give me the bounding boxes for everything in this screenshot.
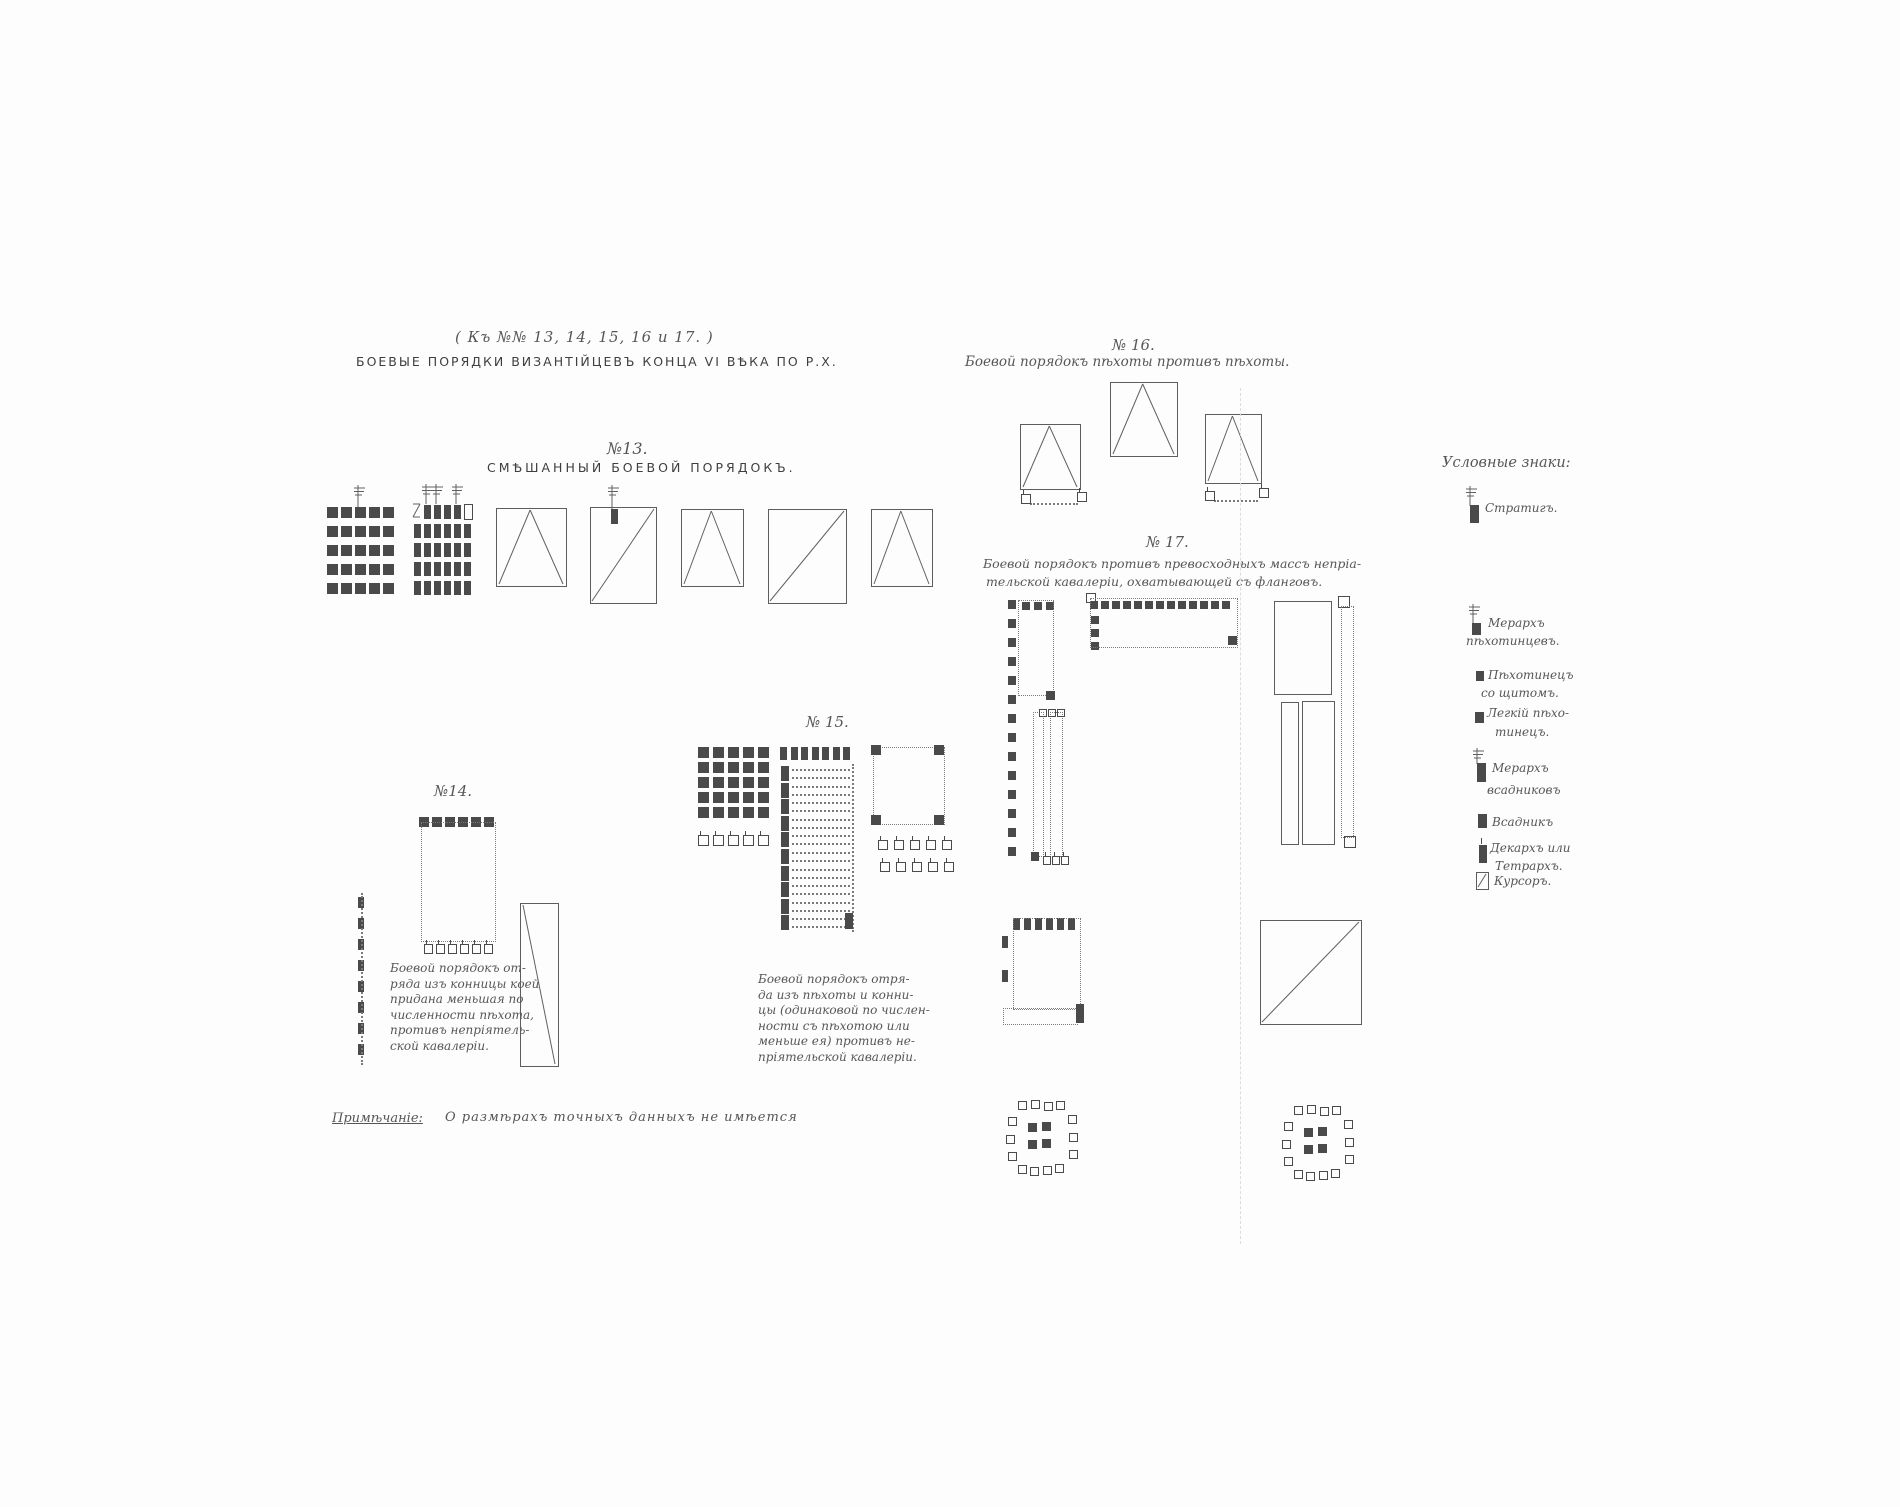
ring-square	[1068, 1115, 1077, 1124]
f15-ladder-bar	[781, 816, 789, 831]
f17-left-flank-square	[1008, 847, 1016, 856]
unit-square-hollow	[896, 862, 906, 872]
standard-flag-icon	[452, 484, 466, 504]
unit-square-hollow	[878, 840, 888, 850]
f13-cavalry-bar	[444, 581, 451, 595]
unit-square	[1046, 691, 1055, 700]
ring-square	[1344, 1120, 1353, 1129]
f15-infantry-square	[713, 777, 724, 788]
f15-ladder-bar	[781, 866, 789, 881]
ring-square	[1018, 1165, 1027, 1174]
f17-left-column-rect	[1050, 712, 1063, 857]
f13-infantry-square	[369, 507, 380, 518]
standard-flag-icon	[432, 484, 446, 504]
diagram-layer	[0, 0, 1900, 1507]
f15-ladder-bar	[833, 747, 840, 760]
f13-cavalry-bar	[464, 581, 471, 595]
unit-square-hollow	[472, 944, 481, 954]
f15-infantry-square	[698, 777, 709, 788]
f14-dotted-rect	[421, 822, 496, 942]
f13-division-rect	[681, 509, 744, 587]
f15-ladder-bar	[843, 747, 850, 760]
f15-ladder-bar	[801, 747, 808, 760]
f15-infantry-square	[743, 807, 754, 818]
f13-infantry-square	[355, 583, 366, 594]
f13-infantry-square	[369, 564, 380, 575]
f13-cavalry-bar	[454, 505, 461, 519]
ring-square	[1307, 1105, 1316, 1114]
f13-infantry-square	[369, 545, 380, 556]
unit-square-hollow	[928, 862, 938, 872]
f13-infantry-square	[327, 526, 338, 537]
f13-cavalry-bar	[454, 543, 461, 557]
f15-infantry-square	[758, 777, 769, 788]
legend-koursor-icon	[1476, 872, 1489, 890]
unit-square-hollow	[713, 835, 724, 846]
f15-dotted-rect	[873, 747, 945, 825]
standard-flag-icon	[608, 485, 622, 509]
unit-square-hollow	[912, 862, 922, 872]
f17-right-division-rect	[1274, 601, 1332, 695]
f15-infantry-square	[728, 792, 739, 803]
unit-square-hollow	[1259, 488, 1269, 498]
f15-infantry-square	[713, 807, 724, 818]
f13-cavalry-bar	[434, 562, 441, 576]
dotted-line	[792, 835, 850, 837]
f17-left-flank-square	[1008, 695, 1016, 704]
f13-cavalry-bar	[414, 562, 421, 576]
f17-left-dotted-rect	[1018, 600, 1054, 696]
ring-square	[1069, 1150, 1078, 1159]
f16-infantry-block	[1205, 414, 1262, 484]
f17-left-flank-square	[1008, 771, 1016, 780]
unit-square-hollow	[743, 835, 754, 846]
unit-square-hollow	[448, 944, 457, 954]
unit-square-hollow	[698, 835, 709, 846]
f15-ladder-bar	[781, 915, 789, 930]
ring-square	[1018, 1101, 1027, 1110]
f13-infantry-square	[327, 583, 338, 594]
ring-square	[1345, 1155, 1354, 1164]
dotted-line	[792, 885, 850, 887]
f13-cavalry-bar	[434, 524, 441, 538]
f17-left-flank-square	[1008, 600, 1016, 609]
f17-right-column-rect	[1302, 701, 1335, 845]
legend-merarch-cavalry-bar	[1477, 763, 1486, 782]
koursor-slash-icon	[412, 503, 422, 519]
ring-square	[1306, 1172, 1315, 1181]
dotted-line	[792, 810, 850, 812]
unit-square	[1076, 1004, 1084, 1023]
f13-infantry-square	[383, 583, 394, 594]
f15-infantry-square	[758, 792, 769, 803]
unit-square-hollow	[1052, 856, 1060, 865]
ring-square	[1284, 1122, 1293, 1131]
f13-infantry-square	[383, 564, 394, 575]
legend-strategos-flag-icon	[1466, 486, 1480, 506]
f15-infantry-square	[713, 792, 724, 803]
dotted-line-vertical	[361, 893, 363, 1065]
dotted-line	[792, 918, 850, 920]
unit-square-hollow	[460, 944, 469, 954]
f13-infantry-square	[369, 526, 380, 537]
unit-square-hollow	[1043, 856, 1051, 865]
scanned-plate: ( Къ №№ 13, 14, 15, 16 и 17. ) БОЕВЫЕ ПО…	[0, 0, 1900, 1507]
f17-right-column-rect	[1281, 702, 1299, 845]
ring-center-square	[1304, 1128, 1313, 1137]
ring-center-square	[1042, 1139, 1051, 1148]
f15-ladder-bar	[781, 882, 789, 897]
legend-merarch-infantry-square	[1472, 623, 1481, 635]
legend-horseman-bar	[1478, 814, 1487, 828]
dotted-line	[792, 926, 850, 928]
f15-corner-square	[934, 815, 944, 825]
standard-flag-icon	[354, 485, 368, 509]
unit-square-hollow	[436, 944, 445, 954]
dotted-line	[792, 843, 850, 845]
f13-infantry-square	[327, 507, 338, 518]
f17-reserve-dotted-rect	[1013, 918, 1081, 1010]
f13-cavalry-bar	[464, 543, 471, 557]
f17-left-flank-square	[1008, 733, 1016, 742]
dotted-line	[1214, 500, 1258, 502]
dotted-line	[792, 893, 850, 895]
f15-ladder-bar	[822, 747, 829, 760]
f17-center-dotted-rect	[1090, 598, 1238, 648]
unit-square-hollow	[1021, 494, 1031, 504]
f15-ladder-bar	[781, 766, 789, 781]
f17-left-flank-square	[1008, 657, 1016, 666]
f17-left-flank-square	[1008, 676, 1016, 685]
f13-cavalry-bar	[444, 524, 451, 538]
f13-cavalry-bar	[454, 524, 461, 538]
legend-merarch-cavalry-flag-icon	[1473, 748, 1487, 764]
f13-infantry-square	[383, 507, 394, 518]
f13-cavalry-bar	[424, 505, 431, 519]
f17-reserve-band	[1003, 1008, 1078, 1025]
f15-ladder-bar	[781, 849, 789, 864]
f13-infantry-square	[383, 526, 394, 537]
f15-infantry-square	[743, 792, 754, 803]
unit-square	[1031, 852, 1039, 861]
f13-cavalry-bar	[454, 562, 461, 576]
unit-square	[1002, 970, 1008, 982]
ring-center-square	[1028, 1140, 1037, 1149]
ring-square	[1006, 1135, 1015, 1144]
f15-infantry-square	[743, 762, 754, 773]
f13-cavalry-bar	[434, 543, 441, 557]
dotted-line	[792, 802, 850, 804]
dotted-line	[1030, 503, 1078, 505]
f13-cavalry-bar	[444, 505, 451, 519]
ring-square	[1319, 1171, 1328, 1180]
dotted-line	[792, 827, 850, 829]
dotted-line	[792, 910, 850, 912]
ring-square	[1044, 1102, 1053, 1111]
unit-square-hollow	[1057, 709, 1065, 717]
ring-square	[1345, 1138, 1354, 1147]
dotted-line	[792, 777, 850, 779]
ring-square	[1294, 1170, 1303, 1179]
f13-cavalry-bar	[444, 543, 451, 557]
f13-cavalry-bar	[414, 581, 421, 595]
f15-ladder-bar	[780, 747, 787, 760]
ring-center-square	[1318, 1127, 1327, 1136]
legend-decarch-bar	[1479, 845, 1487, 863]
f17-left-flank-square	[1008, 809, 1016, 818]
f13-infantry-square	[355, 545, 366, 556]
f15-infantry-square	[728, 762, 739, 773]
f13-cavalry-bar	[424, 543, 431, 557]
unit-square	[1228, 636, 1237, 645]
f17-left-flank-square	[1008, 714, 1016, 723]
f15-infantry-square	[758, 762, 769, 773]
ring-center-square	[1042, 1122, 1051, 1131]
f15-ladder-bar	[791, 747, 798, 760]
ring-square	[1008, 1117, 1017, 1126]
legend-light-infantry-square	[1475, 712, 1484, 723]
f15-ladder-bar	[781, 783, 789, 798]
f15-corner-square	[934, 745, 944, 755]
f15-corner-square	[871, 815, 881, 825]
page-crease-line	[1240, 388, 1241, 1244]
ring-square	[1043, 1166, 1052, 1175]
unit-square-hollow	[728, 835, 739, 846]
dotted-line	[792, 819, 850, 821]
ring-square	[1294, 1106, 1303, 1115]
f13-infantry-square	[355, 526, 366, 537]
unit-square-hollow	[880, 862, 890, 872]
dotted-line	[792, 769, 850, 771]
f16-infantry-block	[1020, 424, 1081, 490]
unit-square-hollow	[484, 944, 493, 954]
f17-left-flank-square	[1008, 619, 1016, 628]
dotted-line	[792, 794, 850, 796]
ring-square	[1284, 1157, 1293, 1166]
f15-ladder-bar	[781, 899, 789, 914]
legend-merarch-infantry-flag-icon	[1469, 604, 1483, 624]
f15-infantry-square	[743, 777, 754, 788]
f17-left-column-rect	[1033, 712, 1044, 857]
f17-square-division	[1260, 920, 1362, 1025]
f13-cavalry-bar	[434, 581, 441, 595]
unit-square-hollow	[894, 840, 904, 850]
f15-ladder-bar	[845, 913, 853, 929]
f17-left-flank-square	[1008, 828, 1016, 837]
f17-left-flank-square	[1008, 638, 1016, 647]
unit-square-hollow	[1039, 709, 1047, 717]
f13-cavalry-bar	[424, 562, 431, 576]
f13-infantry-square	[383, 545, 394, 556]
ring-square	[1282, 1140, 1291, 1149]
f15-infantry-square	[698, 792, 709, 803]
f17-right-dotted-strip	[1341, 606, 1354, 838]
ring-square	[1031, 1100, 1040, 1109]
f13-cavalry-bar	[424, 524, 431, 538]
ring-square	[1332, 1106, 1341, 1115]
f13-cavalry-bar	[464, 562, 471, 576]
legend-strategos-bar	[1470, 505, 1479, 523]
koursor-rect-icon	[464, 504, 473, 520]
f17-left-flank-square	[1008, 790, 1016, 799]
f13-infantry-square	[355, 507, 366, 518]
f15-infantry-square	[728, 777, 739, 788]
f13-infantry-square	[341, 564, 352, 575]
f13-infantry-square	[327, 564, 338, 575]
f13-cavalry-bar	[454, 581, 461, 595]
unit-square-hollow	[910, 840, 920, 850]
f17-left-flank-square	[1008, 752, 1016, 761]
f13-division-rect	[590, 507, 657, 604]
f13-infantry-square	[327, 545, 338, 556]
unit-square-hollow	[758, 835, 769, 846]
unit-square-hollow	[424, 944, 433, 954]
unit-square-hollow	[1205, 491, 1215, 501]
dotted-line	[792, 902, 850, 904]
f15-infantry-square	[698, 747, 709, 758]
f13-infantry-square	[341, 545, 352, 556]
unit-square	[1481, 838, 1482, 844]
f13-division-rect	[871, 509, 933, 587]
f15-infantry-square	[698, 762, 709, 773]
dotted-line	[792, 852, 850, 854]
unit-square-hollow	[942, 840, 952, 850]
f15-infantry-square	[728, 747, 739, 758]
f15-infantry-square	[743, 747, 754, 758]
f15-infantry-square	[713, 747, 724, 758]
unit-square-hollow	[1061, 856, 1069, 865]
f16-infantry-block	[1110, 382, 1178, 457]
ring-square	[1320, 1107, 1329, 1116]
f15-infantry-square	[728, 807, 739, 818]
ring-square	[1030, 1167, 1039, 1176]
f13-infantry-square	[341, 583, 352, 594]
unit-square-hollow	[1344, 836, 1356, 848]
dotted-line	[792, 786, 850, 788]
f13-infantry-square	[341, 507, 352, 518]
f15-corner-square	[871, 745, 881, 755]
f15-ladder-bar	[781, 799, 789, 814]
unit-square-hollow	[926, 840, 936, 850]
f13-division-rect	[496, 508, 567, 587]
unit-square-hollow	[1077, 492, 1087, 502]
f13-infantry-square	[341, 526, 352, 537]
ring-square	[1055, 1164, 1064, 1173]
f15-infantry-square	[758, 747, 769, 758]
f13-cavalry-bar	[414, 524, 421, 538]
unit-square-hollow	[1048, 709, 1056, 717]
f13-cavalry-bar	[464, 524, 471, 538]
dotted-line	[792, 869, 850, 871]
f15-ladder-bar	[781, 832, 789, 847]
f13-infantry-square	[369, 583, 380, 594]
ring-square	[1331, 1169, 1340, 1178]
f13-cavalry-bar	[434, 505, 441, 519]
f15-infantry-square	[758, 807, 769, 818]
f15-ladder-bar	[812, 747, 819, 760]
f15-infantry-square	[698, 807, 709, 818]
dotted-line-vertical	[852, 764, 854, 932]
f13-infantry-square	[355, 564, 366, 575]
ring-center-square	[1028, 1123, 1037, 1132]
f15-infantry-square	[713, 762, 724, 773]
f13-cavalry-bar	[444, 562, 451, 576]
f13-cavalry-bar	[424, 581, 431, 595]
ring-square	[1069, 1133, 1078, 1142]
f14-column-rect	[520, 903, 559, 1067]
f13-division-rect	[768, 509, 847, 604]
ring-center-square	[1318, 1144, 1327, 1153]
ring-center-square	[1304, 1145, 1313, 1154]
unit-square	[1002, 936, 1008, 948]
ring-square	[1008, 1152, 1017, 1161]
legend-infantry-shield-square	[1476, 671, 1484, 681]
f13-cavalry-bar	[414, 543, 421, 557]
dotted-line	[792, 860, 850, 862]
dotted-line	[792, 877, 850, 879]
ring-square	[1056, 1101, 1065, 1110]
unit-square-hollow	[944, 862, 954, 872]
